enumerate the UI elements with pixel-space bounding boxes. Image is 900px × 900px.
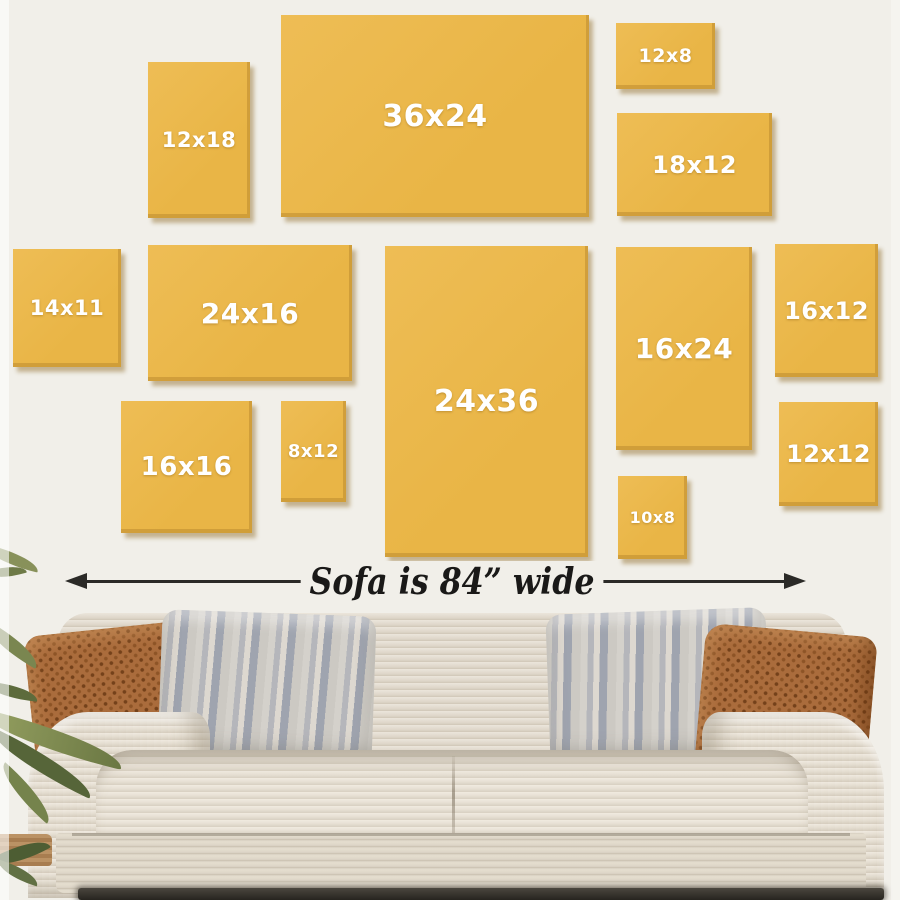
frame-16x12: 16x12: [775, 244, 878, 377]
frame-12x8: 12x8: [616, 23, 715, 89]
frame-size-label: 12x18: [162, 128, 237, 152]
frame-size-label: 16x12: [784, 297, 869, 325]
right-margin-strip: [891, 0, 900, 900]
frame-24x36: 24x36: [385, 246, 588, 557]
frame-size-label: 24x36: [434, 384, 539, 419]
floor-shadow: [78, 888, 884, 900]
frame-18x12: 18x12: [617, 113, 772, 216]
size-guide-image: 12x1836x2412x818x1214x1124x1624x3616x241…: [0, 0, 900, 900]
frame-24x16: 24x16: [148, 245, 352, 381]
frame-14x11: 14x11: [13, 249, 121, 367]
frame-10x8: 10x8: [618, 476, 687, 559]
frame-size-label: 18x12: [652, 151, 737, 179]
frame-size-label: 12x8: [639, 45, 693, 67]
frame-36x24: 36x24: [281, 15, 589, 217]
base-seam: [72, 833, 850, 836]
frame-size-label: 14x11: [30, 296, 105, 320]
arrow-right-icon: [784, 573, 806, 589]
frame-size-label: 10x8: [630, 508, 676, 527]
sofa-width-caption: Sofa is 84” wide: [301, 561, 604, 603]
frame-size-label: 8x12: [288, 441, 339, 462]
plant: [0, 540, 180, 900]
frame-12x18: 12x18: [148, 62, 250, 218]
plant-leaf: [0, 708, 127, 770]
frame-size-label: 16x16: [141, 452, 233, 482]
frame-16x16: 16x16: [121, 401, 252, 533]
left-margin-strip: [0, 0, 9, 900]
frame-12x12: 12x12: [779, 402, 878, 506]
frame-8x12: 8x12: [281, 401, 346, 502]
frame-size-label: 16x24: [635, 332, 734, 365]
frame-size-label: 12x12: [786, 440, 871, 468]
sofa-seat-cushions: [96, 750, 808, 842]
frame-16x24: 16x24: [616, 247, 752, 450]
frame-size-label: 24x16: [201, 297, 300, 330]
frame-size-label: 36x24: [382, 99, 487, 134]
seat-center-seam: [452, 756, 455, 840]
